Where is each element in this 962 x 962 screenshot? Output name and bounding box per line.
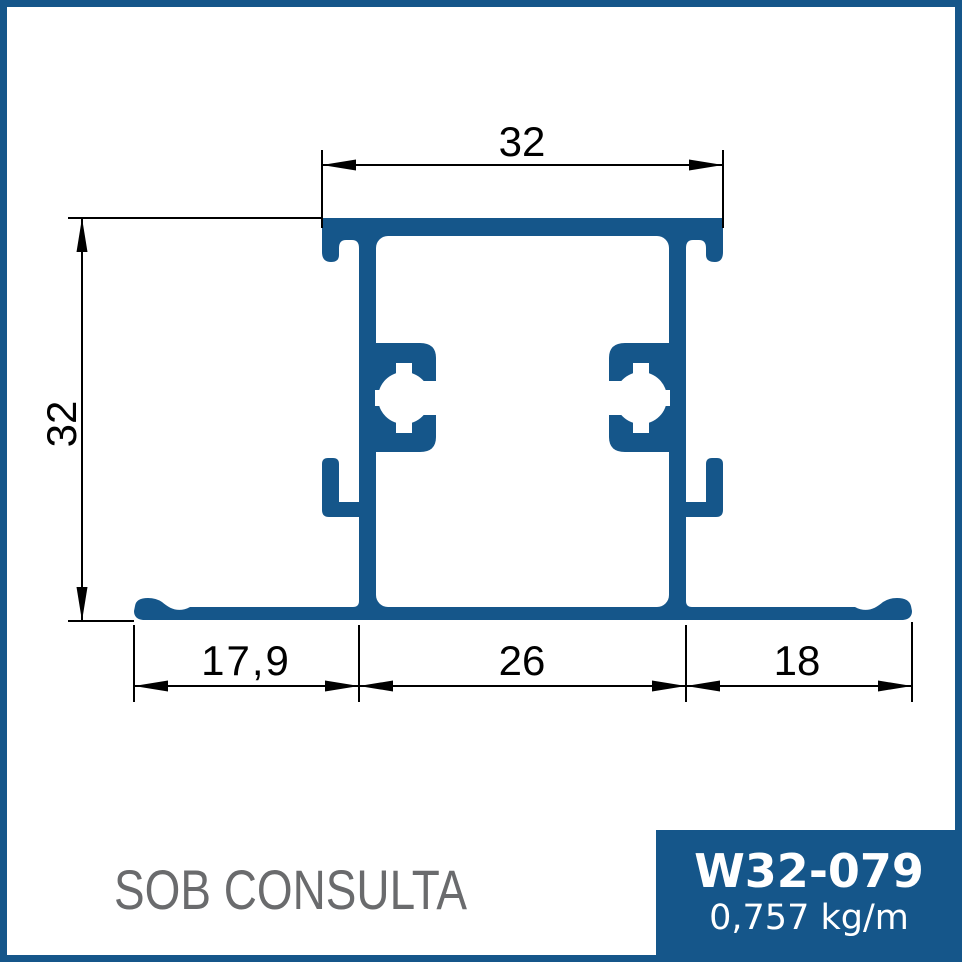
arrow-left xyxy=(359,681,393,692)
profile-technical-drawing: 32 32 17,9 26 18 xyxy=(0,0,962,962)
dimension-left-height: 32 xyxy=(38,218,322,621)
arrow-left xyxy=(322,160,356,171)
dim-left-height-label: 32 xyxy=(38,401,85,448)
notch xyxy=(396,363,412,377)
screw-slot-right xyxy=(599,381,626,415)
profile-cross-section xyxy=(134,218,912,620)
arrow-right xyxy=(325,681,359,692)
arrow-right xyxy=(878,681,912,692)
part-code: W32-079 xyxy=(694,845,924,897)
arrow-right xyxy=(689,160,723,171)
dim-bottom-right-label: 18 xyxy=(774,637,821,684)
arrow-up xyxy=(77,218,88,252)
dim-top-width-label: 32 xyxy=(499,118,546,165)
notch xyxy=(396,419,412,433)
screw-slot-left xyxy=(419,381,446,415)
dimension-top-width: 32 xyxy=(322,118,723,228)
arrow-left xyxy=(686,681,720,692)
part-info-box: W32-079 0,757 kg/m xyxy=(656,830,962,962)
notch xyxy=(658,390,670,406)
part-weight: 0,757 kg/m xyxy=(709,897,909,939)
dim-bottom-center-label: 26 xyxy=(499,637,546,684)
dimension-bottom: 17,9 26 18 xyxy=(134,622,912,702)
arrow-right xyxy=(652,681,686,692)
notch xyxy=(633,419,649,433)
notch xyxy=(375,390,387,406)
status-label: SOB CONSULTA xyxy=(114,862,467,918)
dim-bottom-left-label: 17,9 xyxy=(201,637,291,684)
arrow-down xyxy=(77,587,88,621)
notch xyxy=(633,363,649,377)
arrow-left xyxy=(134,681,168,692)
